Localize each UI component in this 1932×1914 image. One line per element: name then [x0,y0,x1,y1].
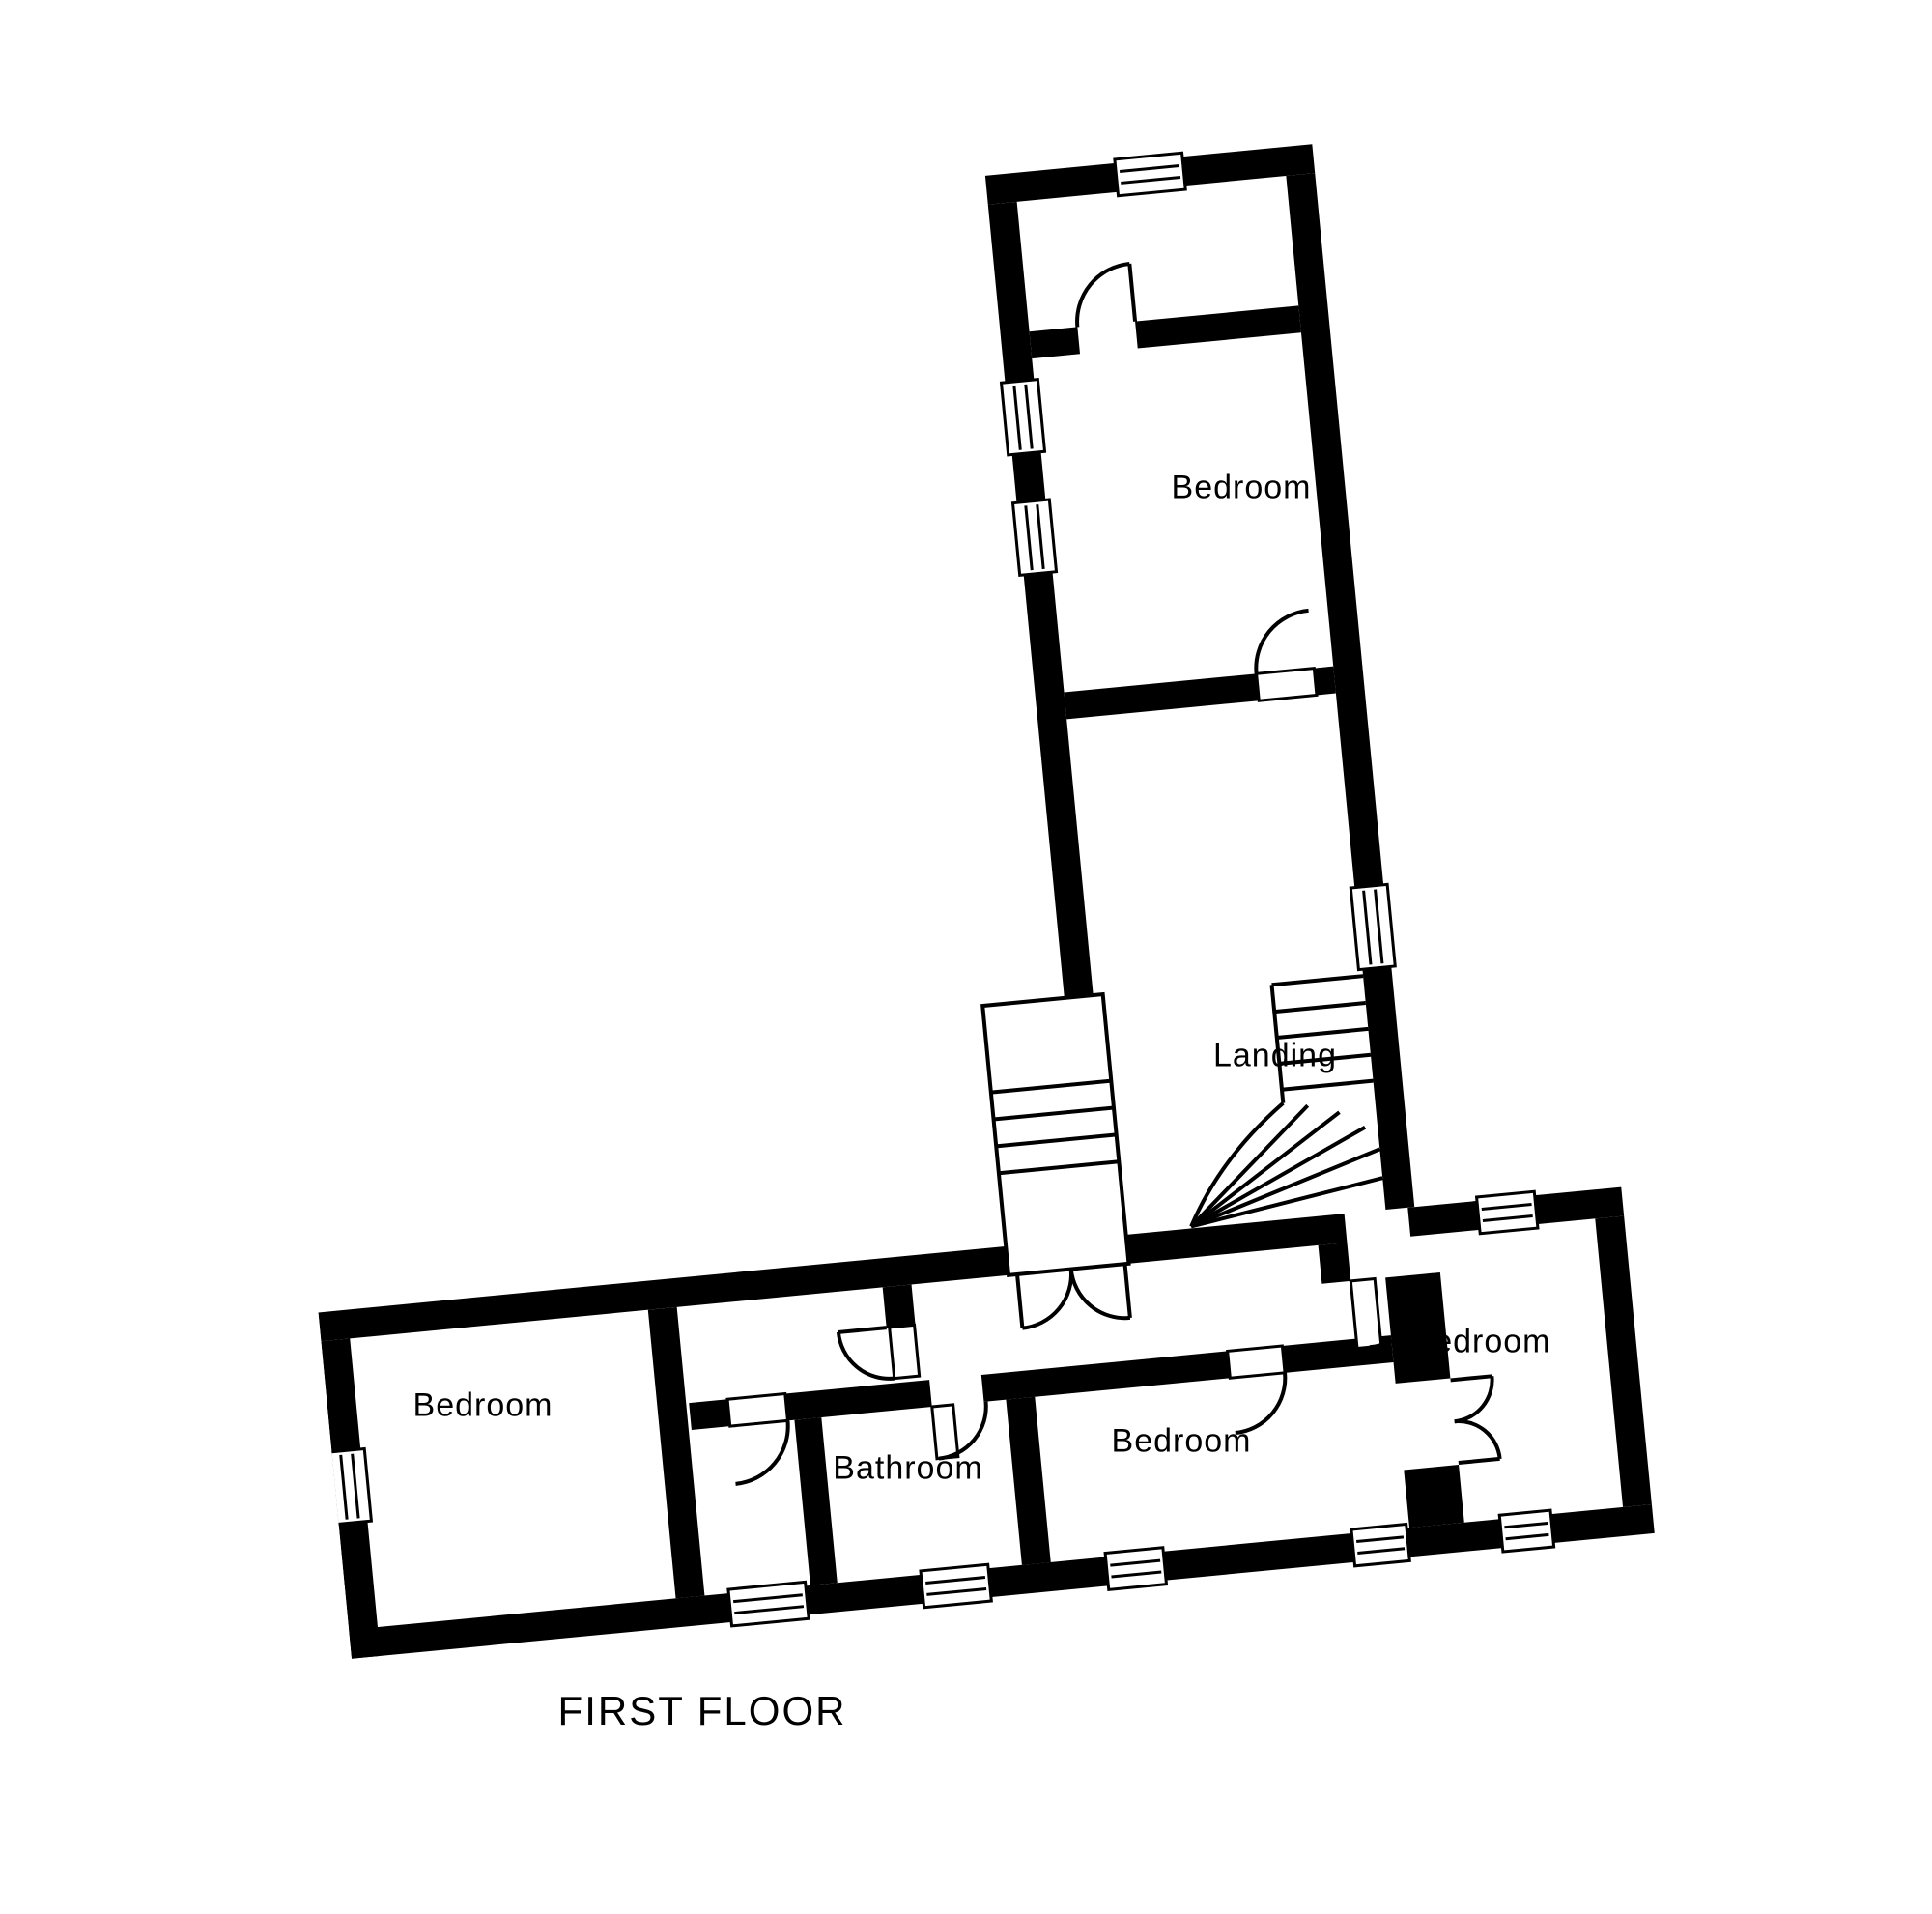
room-label-bedroom-middle: Bedroom [1112,1423,1252,1461]
wall-small-room-divider-a [1030,327,1080,358]
wall-corridor-south-a [689,1399,729,1430]
wall-corridor-south-c [981,1351,1231,1401]
staircase-winder [1169,976,1385,1226]
window-left-bedroom-west [327,1449,371,1525]
window-top-wing-west-lower [1013,500,1057,575]
floor-plan-page: Bedroom Landing Bedroom Bathroom Bedroom… [0,0,1932,1914]
wall-bottom-wing-east [1595,1215,1652,1506]
windows [215,129,1569,1663]
window-middle-bedroom-south-a [1105,1548,1166,1590]
wall-bedroom-landing-a [1065,673,1260,719]
room-label-bedroom-left: Bedroom [413,1387,554,1425]
wall-bathroom-west [794,1417,837,1585]
window-bathroom-south [921,1564,991,1608]
wall-stub-landing [1319,1243,1351,1284]
floor-title: FIRST FLOOR [558,1688,847,1734]
room-label-landing: Landing [1213,1038,1337,1075]
wall-bathroom-east [1006,1397,1050,1565]
room-label-bedroom-right: Bedroom [1411,1324,1551,1361]
door-small-room [1072,264,1135,327]
wall-stub-corridor [883,1284,916,1328]
window-top-wing-west-upper [1002,380,1045,455]
window-right-bedroom-north [1477,1191,1538,1234]
door-lobby [727,1394,793,1484]
staircase-straight [982,994,1128,1275]
door-bedrooms-double-swing [1451,1376,1500,1463]
window-landing-east [1350,884,1395,969]
window-top-wing-north [1115,153,1185,196]
window-right-bedroom-south [1499,1510,1553,1552]
wall-corridor-south-b [785,1380,932,1420]
room-label-bathroom: Bathroom [833,1450,982,1488]
door-top-bedroom [1251,611,1317,700]
door-corridor [838,1325,920,1383]
wall-small-room-divider-b [1135,305,1301,348]
wall-left-bedroom-east [648,1307,705,1598]
window-middle-bedroom-south-b [1351,1525,1409,1566]
wall-bottom-wing-north-b [1124,1214,1348,1264]
wall-bedrooms-divider-b [1404,1465,1463,1528]
window-lobby-south [728,1582,809,1625]
floor-plan-drawing [215,110,1700,1682]
wall-bottom-wing-south [349,1504,1655,1659]
room-label-bedroom-top: Bedroom [1172,470,1312,507]
door-middle-bedroom [1228,1346,1291,1433]
